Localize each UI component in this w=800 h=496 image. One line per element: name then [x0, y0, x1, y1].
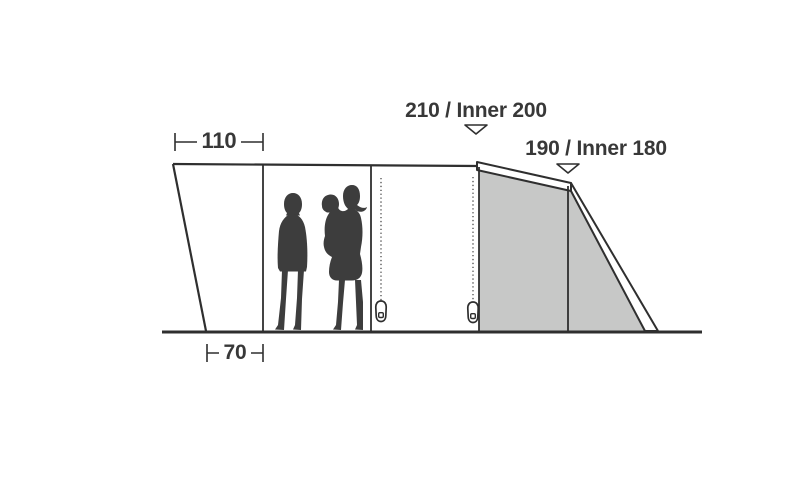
tent-dimension-diagram: 210 / Inner 200 190 / Inner 180 110 70	[0, 0, 800, 496]
zipper-pull-front-icon	[376, 301, 386, 322]
tent-profile-drawing	[0, 0, 800, 496]
label-height-rear: 190 / Inner 180	[496, 138, 696, 159]
height-marker-190-icon	[557, 164, 579, 173]
zipper-pull-rear-icon	[468, 302, 478, 323]
label-height-main: 210 / Inner 200	[376, 100, 576, 121]
front-wall-line	[173, 164, 206, 331]
roof-line	[173, 164, 478, 166]
rear-panel-fill	[479, 171, 568, 331]
height-marker-210-icon	[465, 125, 487, 134]
family-silhouette-icon	[275, 185, 367, 330]
label-width-bottom: 70	[219, 341, 252, 364]
label-width-top: 110	[197, 128, 242, 153]
